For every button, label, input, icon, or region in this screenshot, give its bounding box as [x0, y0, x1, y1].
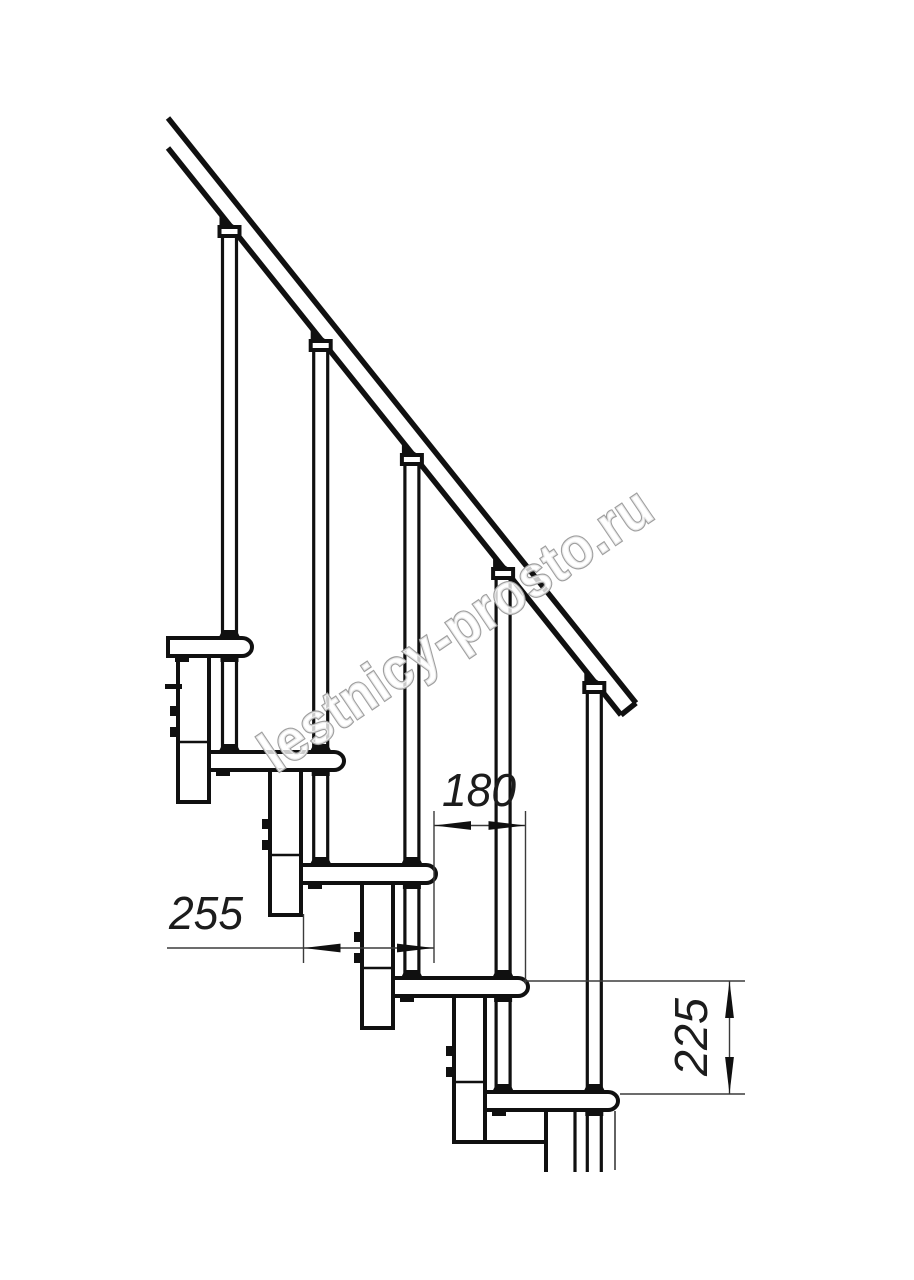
drawing-canvas: 180 255 225 lestnicy-prosto.ru — [0, 0, 914, 1280]
support-column-1 — [170, 656, 209, 802]
arrowhead-up — [725, 981, 734, 1018]
baluster-collar — [220, 227, 240, 236]
baluster-1 — [220, 216, 240, 752]
under-tread-connector — [312, 768, 330, 776]
arrowhead-right — [397, 944, 434, 953]
support-column-body — [270, 770, 301, 915]
staircase-technical-drawing: 180 255 225 lestnicy-prosto.ru — [0, 0, 914, 1280]
tread-1 — [168, 638, 252, 656]
dimension-255-label: 255 — [168, 887, 243, 939]
support-column-4 — [446, 996, 485, 1142]
arrowhead-left — [304, 944, 341, 953]
arrowhead-down — [725, 1057, 734, 1094]
baluster-3 — [402, 444, 422, 978]
arrowhead-right — [489, 821, 526, 830]
tread-5 — [485, 1092, 618, 1110]
tread-fixing-bolt — [216, 769, 230, 776]
under-tread-connector — [403, 881, 421, 889]
tread-4 — [393, 978, 528, 996]
baluster-collar — [311, 341, 331, 350]
under-tread-connector — [585, 1108, 603, 1116]
column-bolt — [354, 932, 363, 942]
support-column-body — [178, 656, 209, 802]
dimension-180: 180 — [434, 764, 526, 984]
tread-fixing-bolt — [175, 655, 189, 662]
arrowhead-left — [434, 821, 471, 830]
baluster-2 — [311, 330, 331, 865]
column-bolt — [446, 1067, 455, 1077]
dimension-225: 225 — [523, 981, 745, 1094]
handrail-end-cut — [621, 703, 636, 715]
dimension-225-label: 225 — [665, 998, 717, 1077]
column-bolt — [354, 953, 363, 963]
handrail-top-edge — [168, 118, 636, 703]
baluster-collar — [584, 683, 604, 692]
column-bolt — [170, 727, 179, 737]
support-column-body — [362, 883, 393, 1028]
module1-bracket-tab — [165, 684, 182, 689]
support-column-body — [454, 996, 485, 1142]
tread-3 — [301, 865, 436, 883]
column-bolt — [446, 1046, 455, 1056]
column-bolt — [262, 840, 271, 850]
under-tread-connector — [221, 654, 239, 662]
dimension-180-label: 180 — [442, 764, 516, 816]
baluster-collar — [402, 455, 422, 464]
tread-fixing-bolt — [492, 1109, 506, 1116]
column-bolt — [170, 706, 179, 716]
support-column-2 — [262, 770, 301, 915]
tread-fixing-bolt — [400, 995, 414, 1002]
column-bolt — [262, 819, 271, 829]
bottom-cut-structure — [487, 1111, 615, 1172]
under-tread-connector — [494, 994, 512, 1002]
tread-fixing-bolt — [308, 882, 322, 889]
support-column-3 — [354, 883, 393, 1028]
